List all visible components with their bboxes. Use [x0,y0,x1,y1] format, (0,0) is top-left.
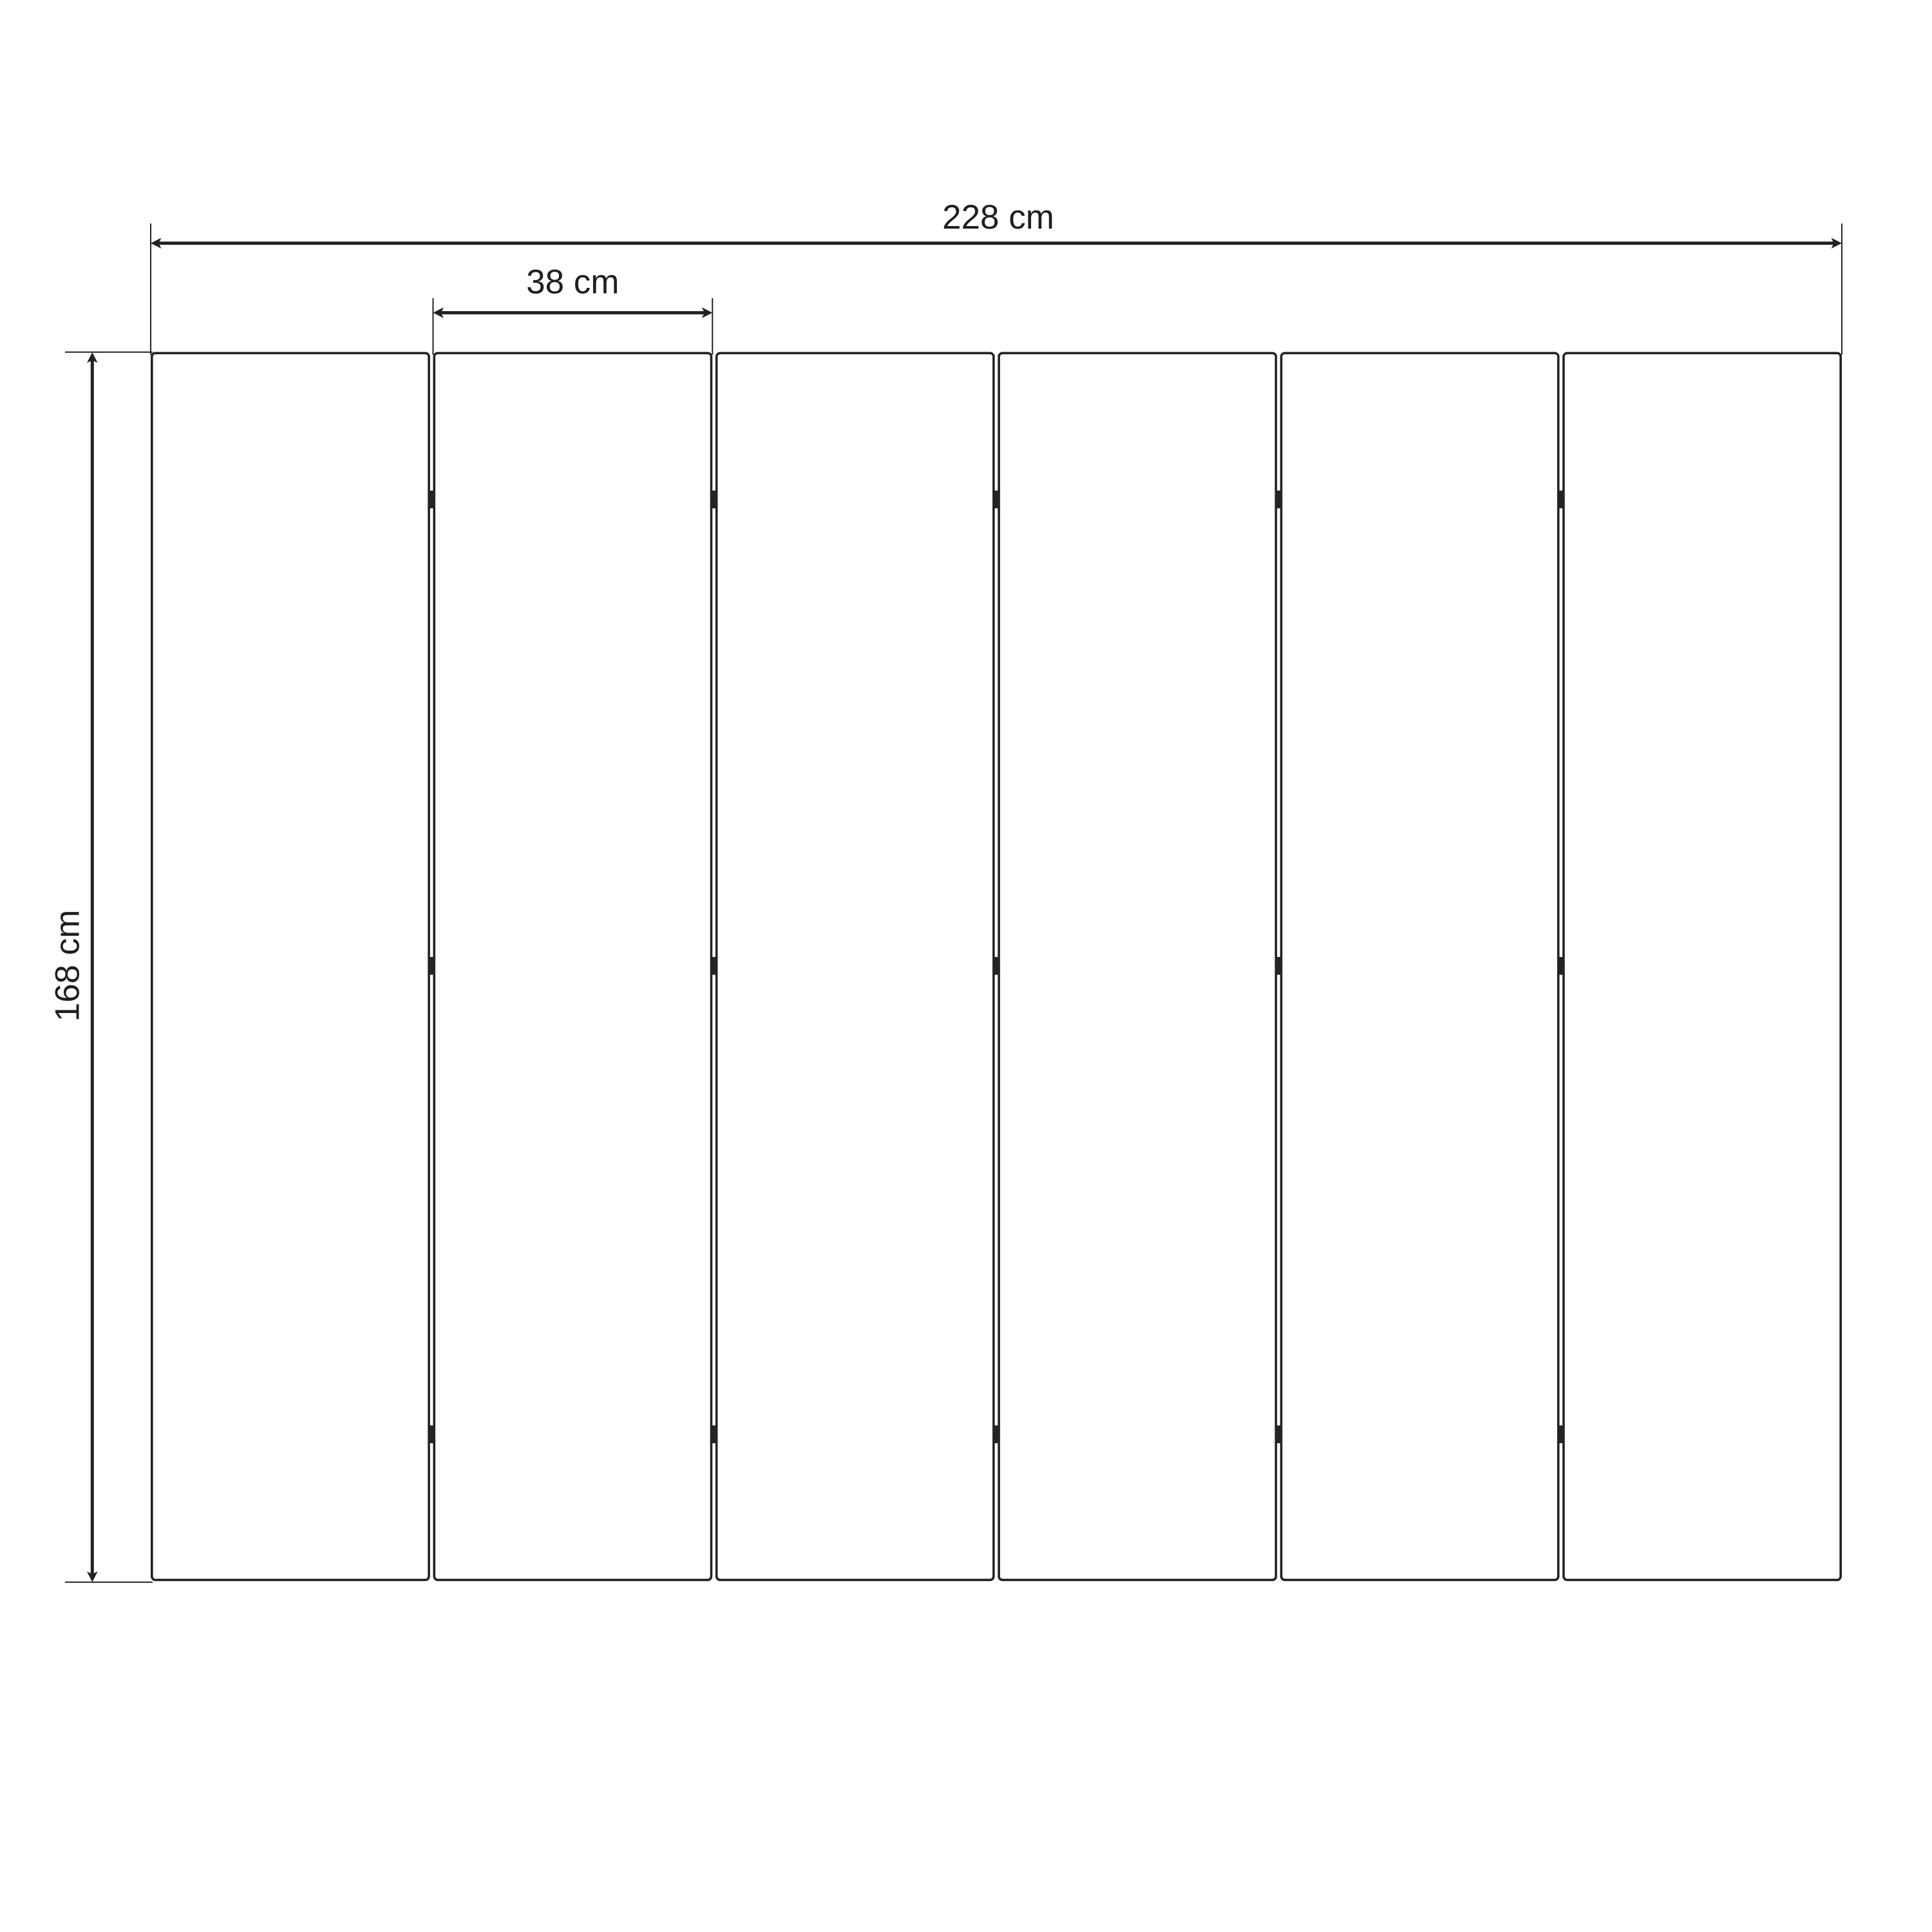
svg-text:228 cm: 228 cm [942,198,1054,236]
svg-text:168 cm: 168 cm [49,910,87,1022]
svg-text:38 cm: 38 cm [526,263,619,301]
